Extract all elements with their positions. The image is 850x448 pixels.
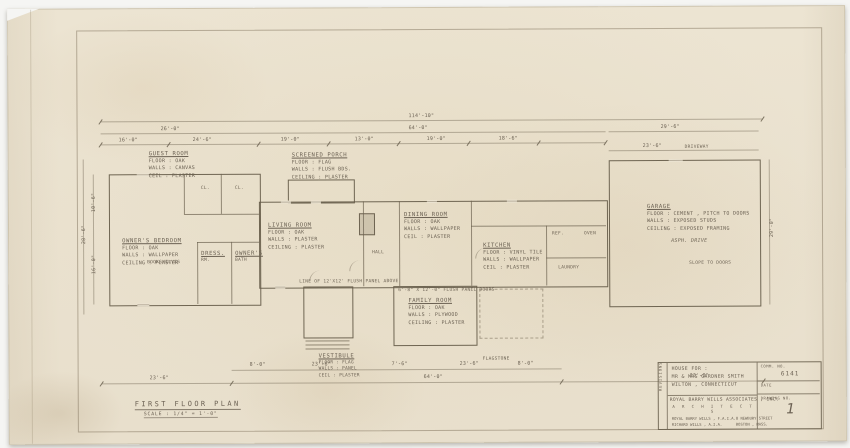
wall-line — [184, 174, 185, 214]
room-label-owners-bath: OWNER'SBATH — [235, 250, 263, 265]
dimension-text: 64'-0" — [424, 374, 443, 380]
window-symbol — [669, 159, 683, 162]
dimension-text: 26'-0" — [161, 126, 180, 132]
dimension-text: 23'-6" — [150, 375, 169, 381]
note-flush-panel-doors: 6'-8" X 12'-0" FLUSH PANEL DOORS — [398, 288, 494, 293]
window-symbol — [507, 200, 517, 203]
plan-title: FIRST FLOOR PLAN — [135, 400, 241, 410]
terrace-outline — [479, 288, 543, 338]
date-cell: DATE — [758, 381, 820, 394]
dimension-text: 16'-0" — [119, 137, 138, 143]
room-label-garage: GARAGEFLOOR : CEMENT , PITCH TO DOORSWAL… — [647, 203, 750, 233]
room-label-screened-porch: SCREENED PORCHFLOOR : FLAGWALLS : FLUSH … — [292, 151, 352, 181]
screened-porch-outline — [288, 179, 355, 203]
note-closet: CL. — [201, 186, 210, 191]
entry-steps-line — [306, 344, 350, 345]
dimension-text: 16'-0" — [91, 251, 97, 277]
dimension-text: 10'-6" — [91, 189, 97, 215]
room-label-kitchen: KITCHENFLOOR : VINYL TILEWALLS : WALLPAP… — [483, 241, 543, 271]
paper-corner-cut — [7, 9, 39, 21]
commission-number-label: COMM. NO. — [761, 363, 820, 368]
entry-steps-line — [306, 348, 350, 349]
project-info-cell: HOUSE FOR :MR & MRS GARDNER SMITHWILTON … — [668, 363, 758, 396]
firm-partners: ROYAL BARRY WILLS , F.A.I.A.RICHARD WILL… — [672, 416, 736, 428]
drawing-number-value: 1 — [761, 401, 820, 417]
note-slope-to-doors: SLOPE TO DOORS — [689, 261, 731, 266]
dimension-text: 19'-0" — [427, 136, 446, 142]
dimension-text: 114'-10" — [409, 113, 435, 119]
dimension-text: 24'-6" — [193, 137, 212, 143]
room-label-dressing-room: DRESS.RM. — [201, 250, 225, 265]
dimension-text: 28'-6" — [81, 221, 87, 247]
note-closet: CL. — [235, 186, 244, 191]
garage-outline — [609, 160, 762, 308]
note-laundry: LAUNDRY — [558, 265, 579, 270]
note-oven: OVEN — [584, 231, 596, 236]
dimension-text: 19'-0" — [281, 137, 300, 143]
note-refrigerator: REF. — [552, 231, 564, 236]
plan-scale: SCALE : 1/4" = 1'-0" — [144, 412, 218, 418]
room-label-vestibule: VESTIBULEFLOOR : FLAGWALLS : PANELCEIL :… — [319, 352, 360, 379]
firm-name: ROYAL BARRY WILLS ASSOCIATES , INC. — [670, 398, 757, 403]
entry-steps-line — [306, 340, 350, 341]
dimension-text: 18'-6" — [499, 136, 518, 142]
fireplace-mass — [359, 213, 375, 235]
commission-number-value: 6141 — [761, 370, 820, 377]
vestibule-outline — [303, 286, 353, 338]
window-symbol — [275, 286, 285, 289]
firm-info-cell: ROYAL BARRY WILLS ASSOCIATES , INC. A R … — [668, 396, 758, 429]
room-label-dining-room: DINING ROOMFLOOR : OAKWALLS : WALLPAPERC… — [404, 211, 460, 241]
dimension-text: 23'-6" — [460, 361, 479, 367]
firm-details-row: ROYAL BARRY WILLS , F.A.I.A.RICHARD WILL… — [670, 416, 757, 428]
room-label-living-room: LIVING ROOMFLOOR : OAKWALLS : PLASTERCEI… — [268, 221, 324, 251]
date-label: DATE — [761, 382, 820, 387]
paper-fold-line — [30, 10, 33, 444]
drawing-sheet-paper: 114'-10" 26'-0" 64'-0" 29'-6" 23'-6" 16'… — [7, 5, 847, 445]
room-label-family-room: FAMILY ROOMFLOOR : OAKWALLS : PLYWOODCEI… — [408, 297, 464, 327]
dimension-text: 13'-0" — [355, 136, 374, 142]
commission-number-cell: COMM. NO. 6141 — [758, 362, 820, 381]
revision-strip: REVISIONS — [659, 363, 668, 429]
window-symbol — [427, 200, 437, 203]
dimension-text: 29'-0" — [769, 214, 775, 240]
wall-line — [221, 174, 222, 214]
note-bookshelves: BOOKSHELVES — [147, 260, 180, 265]
note-flagstone: FLAGSTONE — [483, 357, 510, 362]
window-symbol — [137, 303, 149, 306]
note-flush-panel: LINE OF 12'X12' FLUSH PANEL ABOVE — [299, 279, 398, 284]
window-symbol — [281, 201, 291, 204]
drawing-number-cell: DRAWING NO. 1 — [758, 394, 820, 428]
scanned-blueprint-page: 114'-10" 26'-0" 64'-0" 29'-6" 23'-6" 16'… — [0, 0, 850, 448]
note-driveway: DRIVEWAY — [685, 145, 709, 150]
dimension-text: 29'-6" — [661, 124, 680, 130]
drawing-number-label: DRAWING NO. — [761, 395, 820, 400]
title-block: REVISIONS HOUSE FOR :MR & MRS GARDNER SM… — [658, 361, 822, 430]
note-hall: HALL — [372, 250, 384, 255]
revision-strip-label: REVISIONS — [658, 383, 663, 391]
dimension-text: 7'-6" — [392, 361, 408, 367]
window-symbol — [311, 200, 321, 203]
dimension-text: 8'-0" — [518, 361, 534, 367]
room-label-guest-room: GUEST ROOMFLOOR : OAKWALLS : CANVASCEIL … — [149, 150, 195, 180]
dimension-text: 8'-0" — [250, 362, 266, 368]
window-symbol — [137, 173, 149, 176]
firm-architects-label: A R C H I T E C T S — [670, 404, 757, 414]
dimension-text: 23'-6" — [643, 143, 662, 149]
note-asphalt-drive: ASPH. DRIVE — [671, 238, 707, 244]
dimension-text: 64'-0" — [409, 125, 428, 131]
